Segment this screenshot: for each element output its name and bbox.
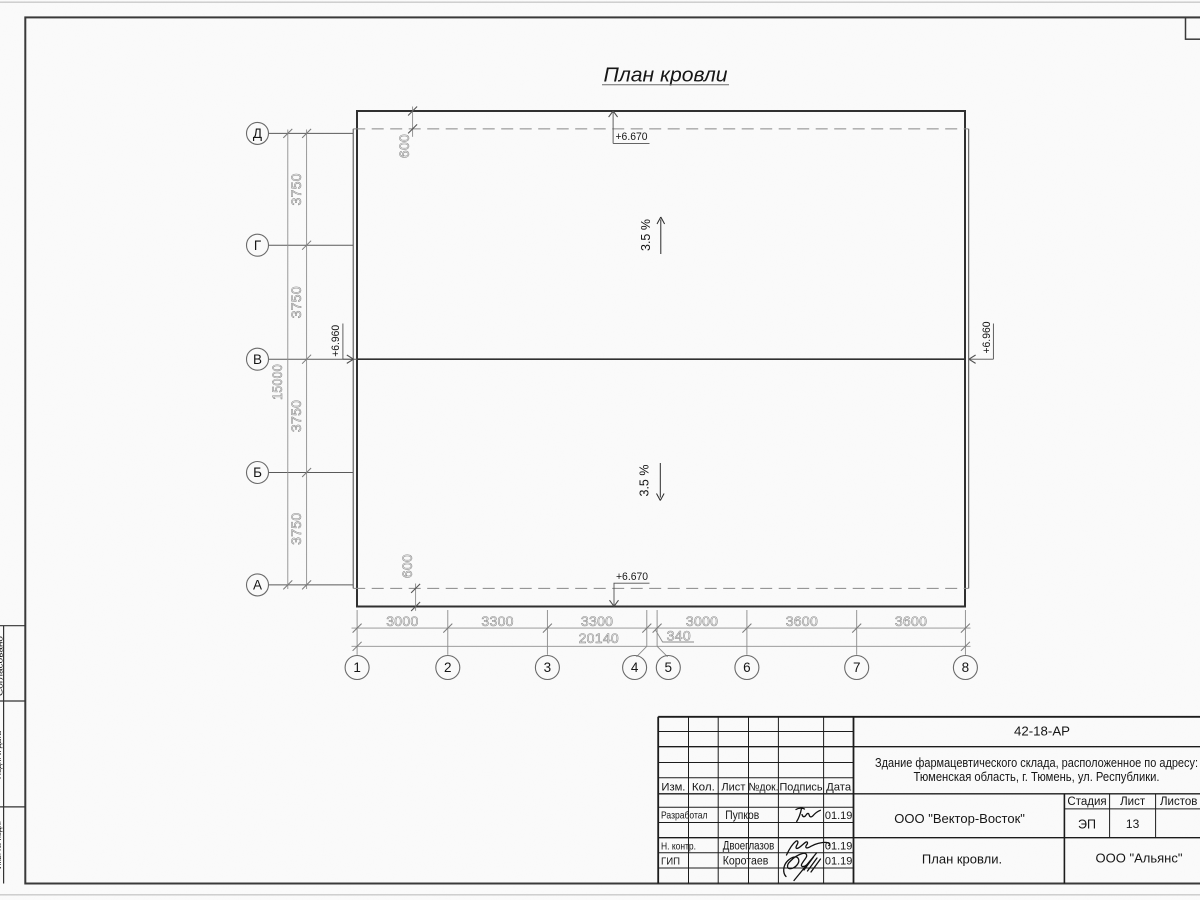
svg-text:15000: 15000 [269, 364, 285, 400]
svg-text:План кровли: План кровли [604, 65, 728, 87]
svg-text:4: 4 [631, 660, 639, 675]
svg-text:+6.960: +6.960 [981, 322, 993, 354]
svg-text:Лист: Лист [721, 781, 745, 793]
svg-text:Инв. № подл.: Инв. № подл. [0, 821, 3, 869]
svg-text:3750: 3750 [288, 173, 304, 205]
svg-text:2: 2 [444, 660, 452, 675]
svg-text:3750: 3750 [288, 286, 304, 318]
svg-text:Листов: Листов [1160, 796, 1197, 808]
svg-text:42-18-АР: 42-18-АР [1014, 724, 1070, 739]
svg-text:1: 1 [353, 660, 361, 675]
svg-text:600: 600 [396, 134, 412, 158]
svg-text:Тюменская область, г. Тюмень,: Тюменская область, г. Тюмень, ул. Респуб… [914, 770, 1160, 784]
svg-text:3600: 3600 [786, 613, 818, 629]
svg-text:6: 6 [743, 660, 751, 675]
svg-text:Подпись: Подпись [780, 781, 823, 793]
svg-text:№док.: №док. [749, 781, 779, 793]
svg-text:600: 600 [399, 554, 415, 578]
svg-text:Пупков: Пупков [725, 810, 759, 822]
svg-text:Разработал: Разработал [661, 810, 708, 822]
svg-text:ООО "Альянс": ООО "Альянс" [1096, 850, 1183, 865]
svg-text:Стадия: Стадия [1067, 796, 1106, 808]
svg-text:5: 5 [665, 660, 673, 675]
svg-text:01.19: 01.19 [825, 856, 853, 868]
svg-text:3300: 3300 [581, 613, 613, 629]
svg-text:Изм.: Изм. [661, 781, 685, 793]
svg-text:340: 340 [667, 627, 691, 643]
svg-text:+6.960: +6.960 [330, 325, 342, 357]
svg-text:01.19: 01.19 [825, 841, 853, 853]
svg-text:В: В [253, 352, 262, 367]
svg-text:Подп. и дата: Подп. и дата [0, 731, 3, 779]
svg-text:Дата: Дата [826, 781, 852, 793]
svg-text:Здание фармацевтического склад: Здание фармацевтического склада, располо… [875, 756, 1198, 770]
svg-text:Б: Б [253, 465, 262, 480]
svg-text:Согласовано: Согласовано [0, 636, 5, 696]
svg-text:ЭП: ЭП [1078, 817, 1096, 831]
svg-text:План кровли.: План кровли. [922, 852, 1002, 867]
svg-text:3300: 3300 [481, 613, 513, 629]
svg-text:Д: Д [253, 126, 262, 141]
svg-text:01.19: 01.19 [825, 810, 853, 822]
svg-text:+6.670: +6.670 [616, 571, 648, 583]
svg-text:Н. контр.: Н. контр. [661, 840, 696, 852]
svg-text:20140: 20140 [579, 630, 619, 646]
svg-text:8: 8 [962, 660, 970, 675]
svg-text:ГИП: ГИП [661, 856, 680, 868]
svg-text:3000: 3000 [386, 613, 418, 629]
svg-text:Кол.: Кол. [692, 781, 715, 793]
svg-text:7: 7 [853, 660, 861, 675]
svg-text:А: А [253, 578, 262, 593]
svg-text:3750: 3750 [288, 400, 304, 432]
svg-text:Коротаев: Коротаев [723, 856, 769, 868]
svg-text:3600: 3600 [895, 613, 927, 629]
svg-text:3.5 %: 3.5 % [639, 219, 653, 251]
svg-text:3.5 %: 3.5 % [638, 465, 652, 497]
svg-text:Двоеглазов: Двоеглазов [723, 841, 775, 853]
svg-text:ООО "Вектор-Восток": ООО "Вектор-Восток" [894, 811, 1025, 826]
svg-text:3750: 3750 [288, 513, 304, 545]
svg-text:+6.670: +6.670 [616, 131, 648, 143]
svg-text:Лист: Лист [1120, 796, 1146, 808]
svg-text:3: 3 [544, 660, 552, 675]
svg-text:13: 13 [1126, 817, 1140, 831]
svg-text:Г: Г [254, 238, 262, 253]
